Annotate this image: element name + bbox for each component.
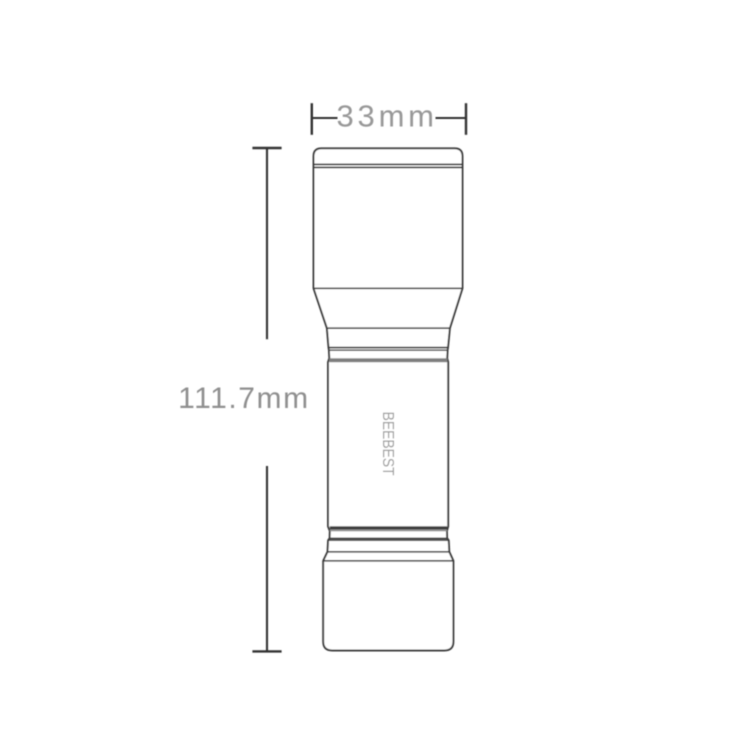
svg-text:111.7mm: 111.7mm: [178, 382, 308, 415]
svg-text:BEEBEST: BEEBEST: [379, 412, 396, 476]
svg-text:33mm: 33mm: [337, 99, 435, 134]
